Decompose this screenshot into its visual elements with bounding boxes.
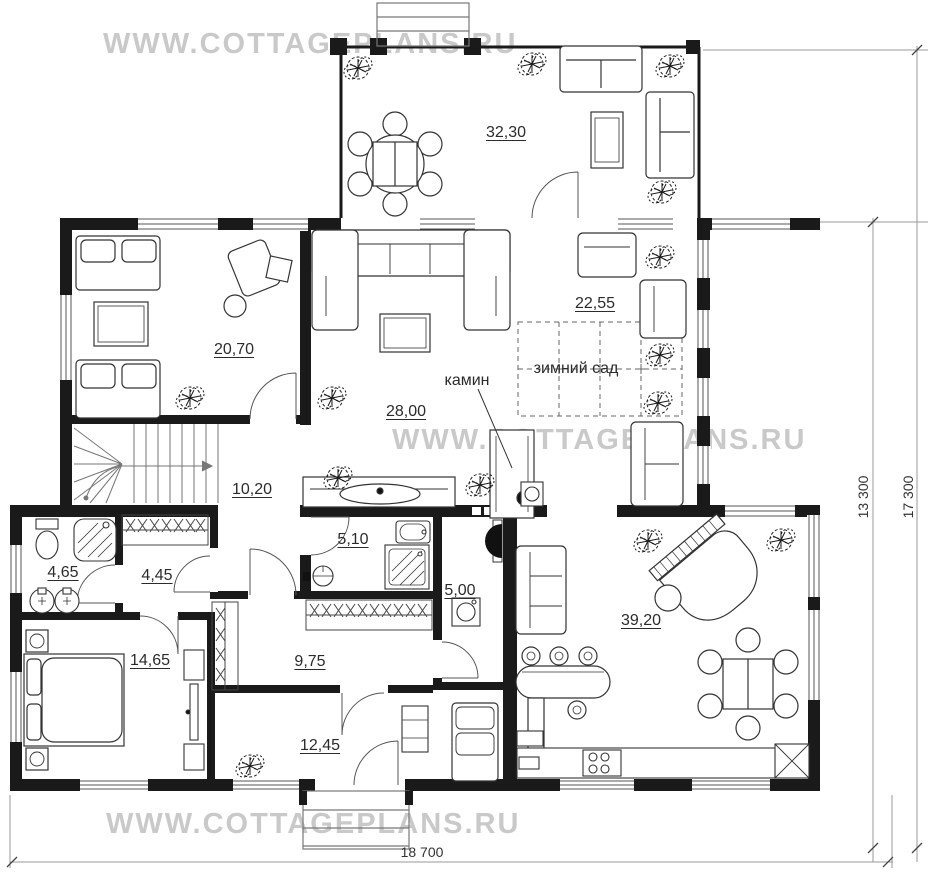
room-area-wardrobe: 4,45: [141, 567, 172, 585]
winter-garden-label: зимний сад: [534, 360, 619, 378]
room-area-terrace: 32,30: [486, 124, 526, 142]
great-room-sofa: [516, 546, 566, 634]
room-area-corridor: 9,75: [294, 653, 325, 671]
terrace-coffee-table: [591, 112, 623, 168]
wardrobe-445: [122, 515, 208, 545]
corridor-wardrobe-left: [212, 602, 238, 690]
grand-piano: [649, 513, 772, 635]
bed: [24, 630, 124, 770]
room-area-entry-hall: 12,45: [300, 737, 340, 755]
sink-fixture: [521, 482, 543, 506]
tv-cabinet: [303, 477, 455, 507]
room-area-hall: 10,20: [232, 481, 272, 499]
floor-plan-drawing: [0, 0, 930, 875]
dim-overall-width: 18 700: [401, 844, 444, 860]
floor-plan-page: WWW.COTTAGEPLANS.RU WWW.COTTAGEPLANS.RU …: [0, 0, 930, 875]
great-room-dining-set: [698, 628, 798, 740]
room-area-shower-room: 4,65: [47, 564, 78, 582]
terrace-sofa-2: [646, 92, 694, 178]
room-area-utility: 5,00: [444, 582, 475, 600]
toilet-1: [36, 519, 58, 559]
terrace-steps: [377, 3, 469, 46]
winter-garden-sofa: [631, 422, 683, 506]
room-area-bathroom: 5,10: [337, 531, 368, 549]
dim-overall-depth: 17 300: [900, 476, 916, 519]
bedroom-tv-unit: [184, 650, 204, 770]
lounge-armchair-desk: [224, 238, 292, 317]
dim-main-depth: 13 300: [855, 476, 871, 519]
shower-1: [74, 519, 116, 561]
room-area-great-room: 39,20: [621, 612, 661, 630]
room-area-lounge: 20,70: [214, 341, 254, 359]
lounge-sofa-bottom: [76, 360, 160, 418]
terrace-sofa-1: [560, 46, 642, 92]
entry-bench: [402, 706, 428, 752]
staircase: [74, 424, 218, 503]
kitchen-counter: [517, 731, 809, 778]
entry-sofa: [452, 703, 498, 781]
shower-2: [385, 545, 429, 589]
lounge-sofa-top: [76, 236, 160, 290]
lounge-table: [94, 302, 148, 346]
terrace-dining-set: [348, 112, 442, 216]
washing-machine: [452, 598, 480, 626]
winter-garden-armchair-2: [640, 280, 686, 338]
entrance-porch: [299, 791, 413, 849]
bathtub: [396, 521, 430, 543]
room-area-living: 28,00: [386, 403, 426, 421]
double-sink: [30, 588, 79, 613]
room-area-winter-garden: 22,55: [575, 295, 615, 313]
winter-garden-armchair-1: [578, 233, 636, 277]
living-table: [380, 314, 430, 352]
fireplace-label: камин: [444, 372, 489, 390]
corridor-wardrobe-top: [306, 600, 432, 630]
boiler: [485, 520, 502, 562]
room-area-bedroom: 14,65: [130, 652, 170, 670]
